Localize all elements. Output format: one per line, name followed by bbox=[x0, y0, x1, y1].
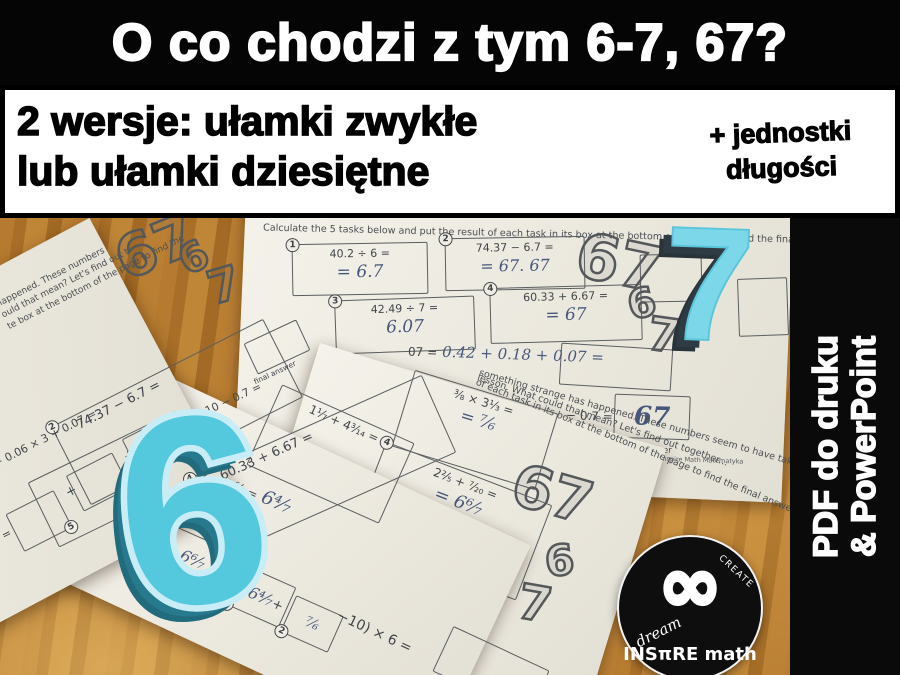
big-number-7: 7 7 bbox=[661, 218, 757, 368]
format-banner-line2: & PowerPoint bbox=[847, 226, 881, 667]
worksheet-photo: Calculate the 5 tasks below and put the … bbox=[0, 218, 900, 675]
promo-cover: O co chodzi z tym 6-7, 67? 2 wersje: uła… bbox=[0, 0, 900, 675]
subtitle-main: 2 wersje: ułamki zwykłe lub ułamki dzies… bbox=[17, 96, 477, 196]
doodle-7: 7 bbox=[202, 258, 245, 311]
big-number-7-face: 7 bbox=[661, 218, 757, 377]
subtitle-bar: 2 wersje: ułamki zwykłe lub ułamki dzies… bbox=[0, 85, 900, 218]
row-prefix: 7 = bbox=[0, 526, 14, 547]
infinity-icon: ∞ bbox=[658, 547, 721, 623]
format-banner-line1: PDF do druku bbox=[809, 226, 843, 667]
subtitle-line1: 2 wersje: ułamki zwykłe bbox=[17, 96, 477, 146]
subtitle-side-line2: długości bbox=[675, 147, 888, 189]
headline-title: O co chodzi z tym 6-7, 67? bbox=[112, 17, 788, 69]
logo-brand-text: INSπRE math bbox=[619, 644, 761, 665]
format-banner: PDF do druku & PowerPoint bbox=[790, 218, 900, 675]
headline-bar: O co chodzi z tym 6-7, 67? bbox=[0, 0, 900, 85]
subtitle-line2: lub ułamki dziesiętne bbox=[17, 146, 477, 196]
subtitle-side: + jednostki długości bbox=[674, 112, 888, 190]
inspire-math-logo: ∞ dream CREATE INSπRE math bbox=[617, 535, 763, 675]
